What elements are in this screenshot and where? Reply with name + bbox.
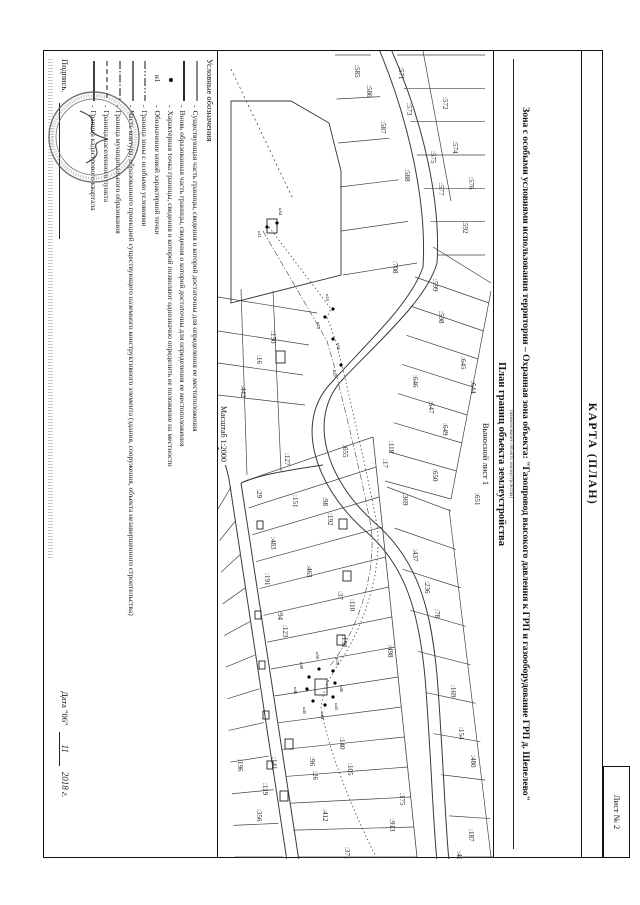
boundary-point-label: н57 [332, 370, 337, 378]
parcel-boundary [233, 823, 278, 825]
parcel-boundary [406, 335, 478, 359]
parcel-number: :16 [255, 355, 263, 364]
parcel-number: :645 [459, 357, 467, 370]
boundary-point-label: н44 [320, 712, 325, 720]
map-frame: :585:586:587:588:592:571:572:573:574:575… [217, 51, 494, 857]
boundary-line [231, 69, 293, 199]
building-footprint [285, 739, 293, 749]
boundary-point [311, 699, 314, 702]
parcel-number: :78 [433, 609, 441, 618]
parcel-number: :463 [305, 565, 313, 578]
parcel-number: :110 [348, 599, 356, 612]
boundary-point [275, 221, 278, 224]
parcel-boundary [224, 622, 250, 636]
parcel-number: :649 [441, 423, 449, 436]
boundary-point [339, 363, 342, 366]
parcel-number: :572 [441, 97, 449, 110]
svg-text:н1: н1 [153, 75, 161, 83]
parcel-number: :599 [431, 279, 439, 292]
parcel-number: :644 [469, 381, 477, 394]
parcel-boundary [340, 180, 399, 187]
boundary-point-label: н46 [293, 687, 298, 695]
legend-item-label: Существующая часть границы, сведения о к… [191, 111, 200, 432]
legend-item: н1-Обозначение новой характерной точки [151, 59, 164, 853]
boundary-point [323, 703, 326, 706]
parcel-number: :650 [431, 469, 439, 482]
parcel-number: :169 [449, 685, 457, 698]
boundary-point-label: н49 [299, 662, 304, 670]
parcel-number: :571 [397, 67, 405, 80]
legend-item-label: Обозначение новой характерной точки [153, 111, 162, 235]
parcel-number: :26 [311, 771, 319, 780]
boundary-line [218, 331, 309, 345]
parcel-number: :592 [461, 221, 469, 234]
parcel-boundary [220, 521, 236, 541]
cadastral-map-svg: :585:586:587:588:592:571:572:573:574:575… [218, 51, 493, 859]
boundary-point-label: н54 [278, 208, 283, 216]
legend-item-dash: - [153, 105, 162, 108]
parcel-number: :437 [411, 549, 419, 562]
boundary-line [218, 297, 317, 313]
legend-item: -Вновь образованная часть границы, сведе… [176, 59, 189, 853]
parcel-number: :127 [283, 453, 291, 466]
building-footprint [276, 351, 285, 363]
boundary-line [218, 395, 305, 405]
parcel-number: :94 [276, 611, 284, 620]
parcel-boundary [218, 487, 231, 509]
parcel-number: :587 [379, 121, 387, 134]
signature-squiggle [80, 111, 108, 163]
parcel-number: :98 [321, 497, 329, 506]
parcel-number: :371 [343, 847, 351, 859]
parcel-boundary [343, 263, 417, 275]
stamp-rim-text [53, 96, 136, 179]
form-title: КАРТА (ПЛАН) [581, 51, 602, 857]
parcel-boundary [394, 423, 462, 443]
boundary-line [423, 51, 451, 201]
legend-item: -Характерная точка границы, сведения о к… [164, 59, 177, 853]
boundary-point-label: н39 [335, 658, 340, 666]
boundary-point [305, 687, 308, 690]
parcel-number: :187 [467, 829, 475, 842]
parcel-boundary [337, 97, 381, 99]
parcel-boundary [229, 722, 264, 730]
map-scale-label: Масштаб 1:2000 [219, 403, 228, 465]
building-footprint [343, 571, 351, 581]
parcel-boundary [341, 221, 407, 231]
legend-title: Условные обозначения [205, 59, 215, 142]
building-footprint [263, 711, 269, 719]
parcel-number: :236 [423, 581, 431, 594]
legend-item-label: Характерная точка границы, сведения о ко… [166, 111, 175, 467]
boundary-point-label: н55 [316, 322, 321, 330]
parcel-number: :119 [261, 783, 269, 796]
parcel-boundary [415, 277, 489, 303]
building-footprint [280, 791, 288, 801]
landscape-document-frame: КАРТА (ПЛАН) Зона с особыми условиями ис… [43, 50, 603, 858]
parcel-boundary [271, 647, 395, 669]
parcel-boundary [441, 775, 485, 780]
microprint-line [48, 59, 53, 559]
boundary-point-label: н11 [257, 231, 262, 239]
boundary-point-label: н40 [339, 685, 344, 693]
parcel-number: :480 [469, 755, 477, 768]
parcel-number: :17 [381, 459, 389, 468]
building-footprint [259, 661, 265, 669]
parcel-number: :913 [388, 819, 396, 832]
parcel-boundary [338, 138, 389, 143]
parcel-boundary [227, 689, 259, 699]
building-footprint [339, 519, 347, 529]
parcel-number: :483 [269, 537, 277, 550]
parcel-number: :118 [387, 441, 395, 454]
parcel-number: :191 [263, 573, 271, 586]
parcel-boundary [290, 797, 411, 803]
parcel-number: :573 [405, 103, 413, 116]
sheet-number-label: Лист № 2 [612, 795, 622, 829]
boundary-point [333, 681, 336, 684]
road-line [229, 479, 287, 859]
boundary-line [218, 363, 303, 375]
boundary-point [307, 675, 310, 678]
legend-item-label: Вновь образованная часть границы, сведен… [178, 111, 187, 447]
road-line [324, 263, 449, 859]
legend-item-dash: - [166, 105, 175, 108]
legend-item-dash: - [178, 105, 187, 108]
parcel-number: :154 [457, 727, 465, 740]
date-group: Дата "06" 11 2018 г. [59, 691, 70, 798]
parcel-number: :141 [270, 757, 278, 770]
parcel-number: :585 [353, 65, 361, 78]
date-year-handwritten: 2018 г. [60, 772, 70, 798]
parcel-number: :412 [321, 809, 329, 822]
inset-sheet-label: Выносной лист 1 [481, 51, 491, 857]
boundary-line [273, 291, 281, 471]
object-title: Зона с особыми условиями использования т… [517, 107, 531, 801]
parcel-number: :588 [403, 169, 411, 182]
parcel-number: :651 [473, 493, 481, 506]
parcel-number: :577 [437, 183, 445, 196]
parcel-number: :151 [291, 495, 299, 508]
road-line [312, 267, 437, 859]
parcel-boundary [403, 569, 461, 588]
plan-title: План границ объекта землеустройства [496, 51, 507, 857]
building-footprint [315, 679, 327, 695]
round-stamp [46, 89, 142, 185]
parcel-number: :29 [255, 489, 263, 498]
parcel-number: :140 [338, 737, 346, 750]
legend-item-dash: - [191, 105, 200, 108]
legend-item-label: Часть контура, образованного проекцией с… [127, 111, 136, 616]
boundary-point-label: н50 [315, 652, 320, 660]
boundary-point [317, 667, 320, 670]
boundary-point [331, 307, 334, 310]
parcel-number: :196 [236, 759, 244, 772]
boundary-line [241, 289, 247, 475]
parcel-number: :96 [308, 757, 316, 766]
boundary-point [331, 695, 334, 698]
boundary-point-label: н45 [302, 707, 307, 715]
parcel-boundary [418, 651, 470, 664]
parcel-number: :37 [336, 591, 344, 600]
parcel-number: :192 [326, 513, 334, 526]
parcel-boundary [278, 707, 401, 723]
building-footprint [257, 521, 263, 529]
legend-item: -Существующая часть границы, сведения о … [189, 59, 202, 853]
large-parcel [231, 101, 341, 303]
sheet-number-box: Лист № 2 [603, 766, 630, 858]
parcel-boundary [226, 655, 255, 667]
boundary-point [331, 669, 334, 672]
object-title-caption: (наименование объекта землеустройства) [508, 51, 513, 857]
boundary-point-label: н56 [336, 343, 341, 351]
parcel-number: :442 [239, 385, 247, 398]
title-underline [513, 59, 514, 849]
parcel-number: :598 [437, 311, 445, 324]
boundary-point [323, 315, 326, 318]
parcel-boundary [260, 557, 386, 588]
parcel-number: :152 [340, 635, 348, 648]
parcel-number: :647 [427, 401, 435, 414]
signature-label: Подпись. [60, 59, 70, 92]
date-month-handwritten: 11 [59, 732, 70, 766]
parcel-number: :369 [401, 493, 409, 506]
boundary-point-label: н43 [334, 703, 339, 711]
parcel-number: :708 [391, 261, 399, 274]
boundary-point-label: н10 [325, 294, 330, 302]
parcel-number: :574 [451, 141, 459, 154]
parcel-number: :576 [467, 177, 475, 190]
parcel-number: :424 [455, 851, 463, 859]
road-line [241, 465, 323, 483]
boundary-line [373, 437, 417, 857]
parcel-number: :105 [346, 763, 354, 776]
parcel-boundary [395, 528, 456, 549]
parcel-number: :123 [281, 625, 289, 638]
parcel-boundary [252, 497, 379, 535]
parcel-number: :586 [365, 85, 373, 98]
parcel-number: :646 [411, 375, 419, 388]
parcel-boundary [223, 588, 246, 604]
parcel-number: :175 [398, 793, 406, 806]
parcel-number: :498 [386, 645, 394, 658]
building-footprint [255, 611, 261, 619]
date-label: Дата "06" [60, 691, 70, 726]
parcel-number: :575 [429, 151, 437, 164]
boundary-point [265, 225, 268, 228]
parcel-boundary [221, 554, 240, 572]
parcel-boundary [411, 306, 484, 331]
scanned-cadastral-sheet: КАРТА (ПЛАН) Зона с особыми условиями ис… [0, 0, 640, 905]
parcel-number: :655 [341, 445, 349, 458]
object-title-row: Зона с особыми условиями использования т… [517, 51, 581, 857]
parcel-boundary [389, 452, 456, 471]
parcel-number: :356 [255, 809, 263, 822]
boundary-point [331, 337, 334, 340]
road-line [379, 51, 424, 267]
parcel-number: :150 [269, 331, 277, 344]
